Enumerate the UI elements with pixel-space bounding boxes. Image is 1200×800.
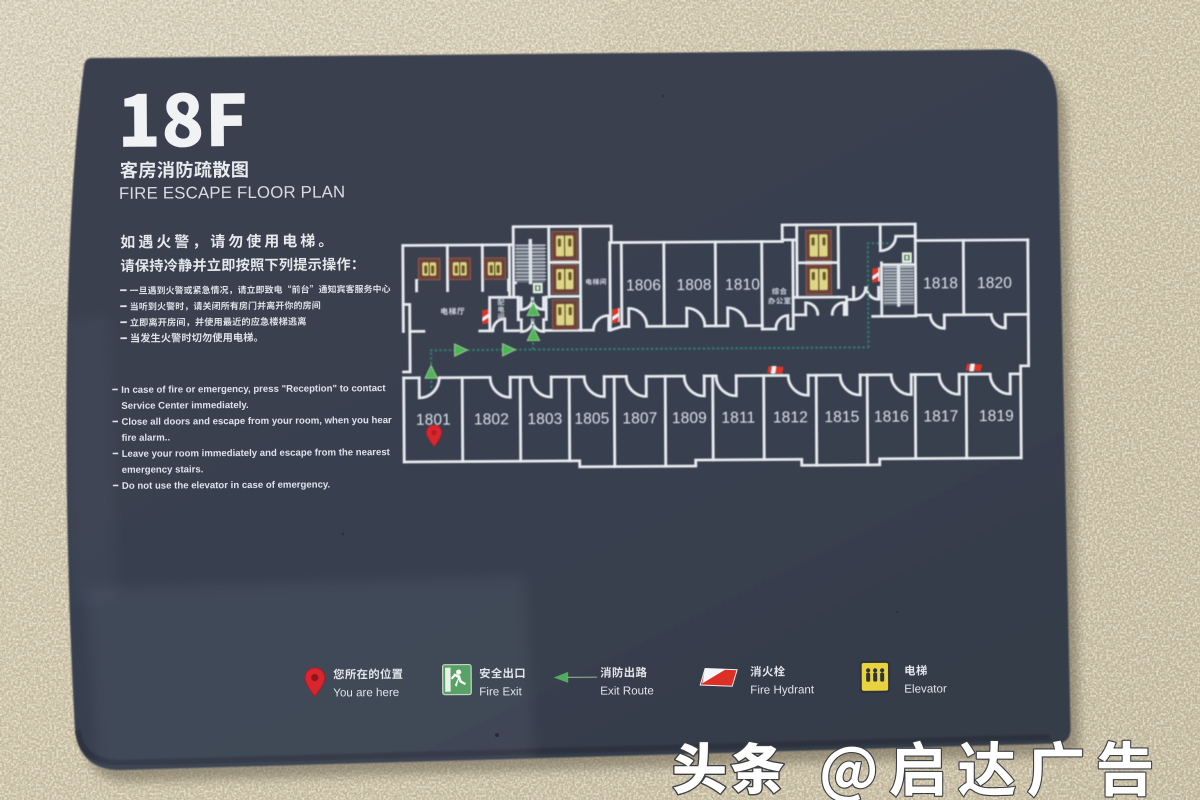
svg-text:1818: 1818 (923, 275, 958, 292)
svg-text:1815: 1815 (824, 409, 859, 426)
svg-text:1811: 1811 (721, 410, 755, 427)
svg-text:Service Center immediately.: Service Center immediately. (121, 400, 248, 412)
svg-text:1807: 1807 (622, 410, 657, 427)
svg-text:Do not use the elevator in cas: Do not use the elevator in case of emerg… (122, 479, 330, 491)
svg-text:1801: 1801 (416, 412, 451, 429)
svg-text:1803: 1803 (527, 411, 562, 428)
svg-text:1805: 1805 (574, 411, 609, 428)
svg-text:1819: 1819 (979, 408, 1014, 425)
svg-text:1808: 1808 (676, 277, 711, 294)
svg-text:You are here: You are here (333, 686, 399, 699)
svg-text:1817: 1817 (923, 408, 958, 425)
svg-text:Fire Hydrant: Fire Hydrant (750, 683, 815, 696)
svg-text:1812: 1812 (773, 409, 808, 426)
svg-text:In case of fire or emergency,: In case of fire or emergency, press "Rec… (121, 383, 386, 396)
svg-text:1820: 1820 (977, 275, 1012, 292)
svg-text:1806: 1806 (626, 277, 661, 294)
svg-text:Close all doors and escape fro: Close all doors and escape from your roo… (121, 415, 392, 428)
svg-text:1810: 1810 (725, 277, 760, 294)
svg-text:Exit Route: Exit Route (600, 684, 654, 697)
svg-text:Fire Exit: Fire Exit (479, 685, 522, 698)
svg-text:fire alarm..: fire alarm.. (122, 433, 171, 444)
svg-text:Leave your room immediately an: Leave your room immediately and escape f… (122, 447, 391, 460)
svg-text:1816: 1816 (874, 409, 909, 426)
svg-text:1809: 1809 (672, 410, 707, 427)
svg-text:FIRE ESCAPE FLOOR PLAN: FIRE ESCAPE FLOOR PLAN (119, 182, 345, 203)
svg-text:Elevator: Elevator (904, 682, 947, 695)
svg-text:1802: 1802 (474, 411, 509, 428)
svg-text:emergency stairs.: emergency stairs. (122, 464, 204, 476)
